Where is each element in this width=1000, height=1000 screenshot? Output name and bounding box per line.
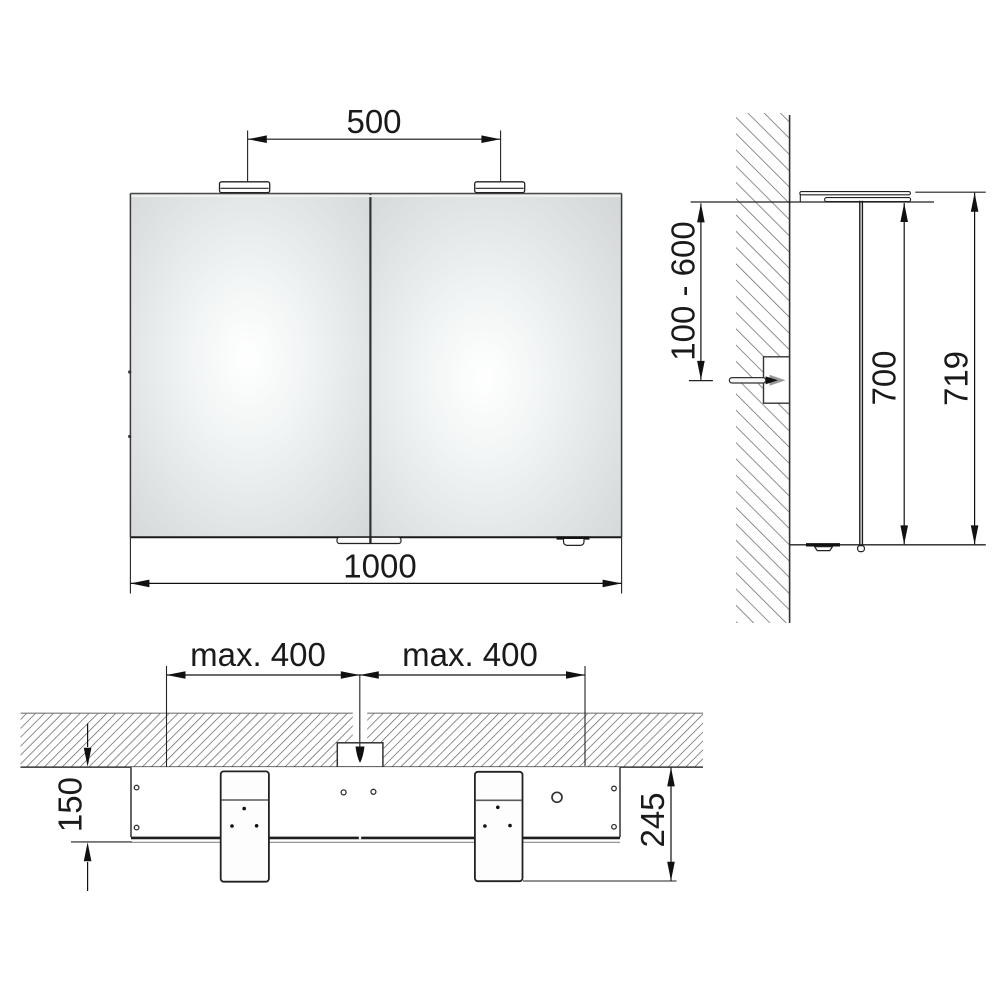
svg-text:245: 245 [634,792,671,847]
svg-text:max. 400: max. 400 [402,636,538,673]
svg-text:1000: 1000 [343,548,416,585]
svg-text:100 - 600: 100 - 600 [664,221,701,360]
svg-text:700: 700 [866,350,903,405]
svg-text:500: 500 [346,103,401,140]
svg-text:150: 150 [51,777,88,832]
svg-text:719: 719 [938,351,975,406]
svg-text:max. 400: max. 400 [190,636,326,673]
